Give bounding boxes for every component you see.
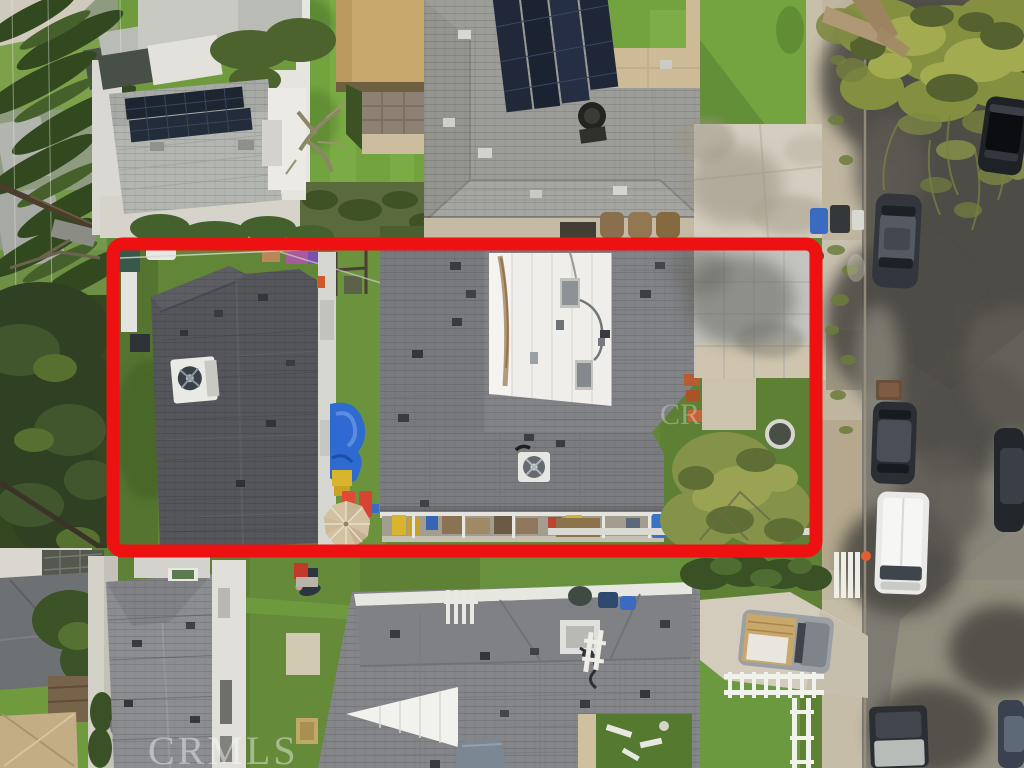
svg-text:CR: CR xyxy=(660,398,700,431)
svg-text:CRMLS: CRMLS xyxy=(148,728,299,768)
